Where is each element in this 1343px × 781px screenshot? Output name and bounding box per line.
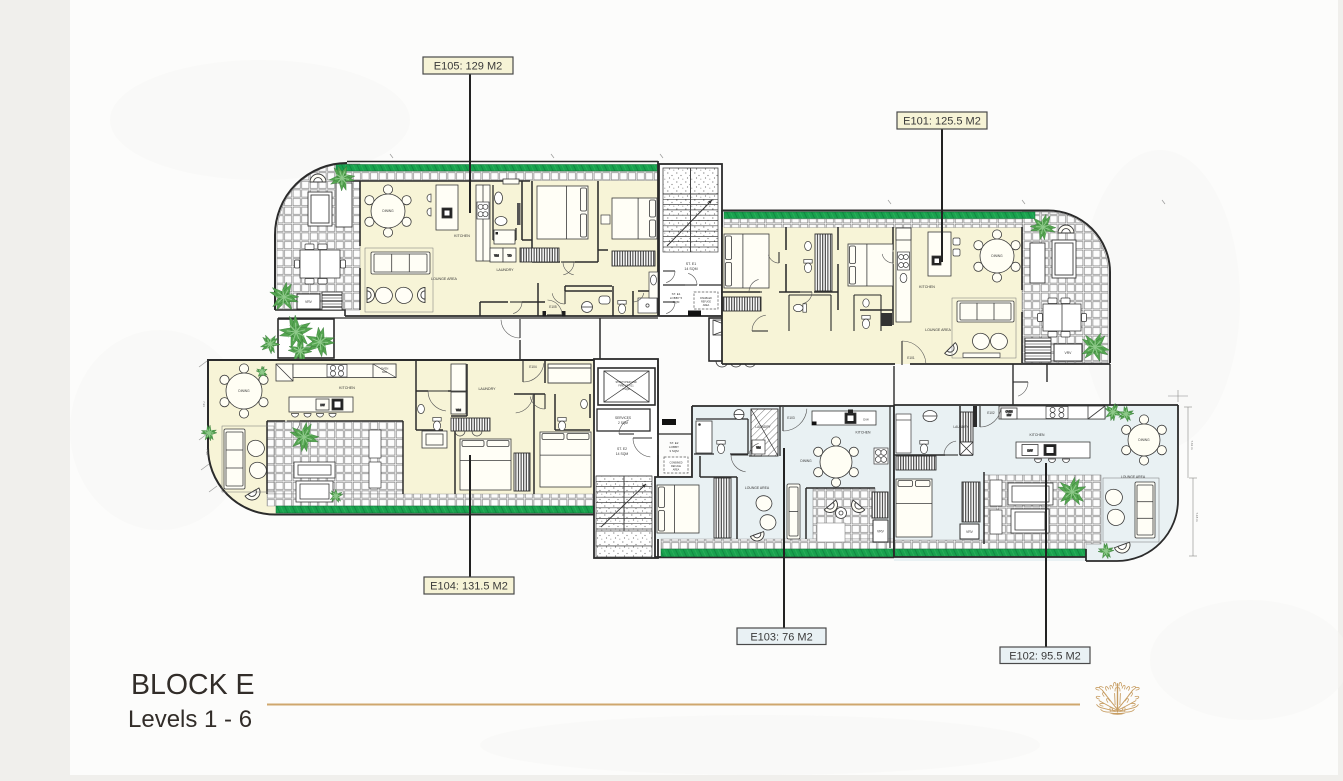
svg-text:KITCHEN: KITCHEN (856, 431, 871, 435)
svg-text:4 SQM: 4 SQM (622, 388, 630, 391)
svg-text:DINING: DINING (382, 209, 394, 213)
svg-text:D/W: D/W (863, 418, 869, 422)
svg-text:WM: WM (456, 408, 462, 412)
svg-text:DINING: DINING (991, 254, 1003, 258)
svg-text:WM: WM (756, 447, 760, 450)
svg-text:7.91: 7.91 (202, 401, 206, 407)
svg-text:KITCHEN: KITCHEN (454, 234, 470, 238)
svg-text:DINING: DINING (800, 459, 812, 463)
svg-text:Levels 1 - 6: Levels 1 - 6 (128, 706, 252, 733)
svg-text:T/D: T/D (507, 254, 511, 258)
svg-text:KITCHEN: KITCHEN (339, 386, 355, 390)
svg-text:E103: 76 M2: E103: 76 M2 (750, 632, 812, 644)
svg-text:14 SQM: 14 SQM (684, 267, 697, 271)
svg-text:ST. E2: ST. E2 (617, 447, 627, 451)
svg-text:LOUNGE AREA: LOUNGE AREA (1121, 475, 1146, 479)
svg-text:E105: 129 M2: E105: 129 M2 (434, 61, 503, 73)
svg-text:DINING: DINING (1138, 438, 1150, 442)
svg-text:ST. E1: ST. E1 (686, 262, 697, 266)
svg-text:LOUNGE AREA: LOUNGE AREA (925, 328, 951, 332)
svg-text:7.38: 7.38 (205, 449, 209, 455)
svg-text:E104: 131.5 M2: E104: 131.5 M2 (430, 581, 508, 593)
svg-text:MW: MW (1007, 414, 1012, 417)
svg-text:LAUNDRY: LAUNDRY (478, 387, 496, 391)
svg-text:VRV: VRV (1065, 351, 1073, 355)
svg-text:E104: E104 (529, 365, 537, 369)
svg-text:2 SQM: 2 SQM (618, 421, 628, 425)
svg-text:E102: 95.5 M2: E102: 95.5 M2 (1009, 651, 1081, 663)
svg-text:LOUNGE AREA: LOUNGE AREA (745, 486, 770, 490)
svg-text:AREA: AREA (703, 304, 710, 307)
svg-text:LAUNDRY: LAUNDRY (953, 425, 969, 429)
svg-text:E101: 125.5 M2: E101: 125.5 M2 (903, 116, 981, 128)
svg-text:OVEN: OVEN (381, 367, 389, 371)
svg-text:E105: E105 (549, 305, 557, 309)
svg-text:WM: WM (494, 254, 499, 258)
svg-text:E101: E101 (907, 356, 915, 360)
svg-text:VRV: VRV (305, 300, 313, 304)
svg-text:E102: E102 (987, 411, 995, 415)
svg-text:AREA: AREA (673, 469, 680, 472)
svg-text:MW: MW (382, 370, 387, 374)
svg-text:D/W: D/W (1027, 449, 1033, 453)
svg-text:LOUNGE AREA: LOUNGE AREA (431, 277, 457, 281)
svg-text:14 SQM: 14 SQM (616, 452, 629, 456)
svg-text:BLOCK E: BLOCK E (131, 669, 255, 701)
svg-text:DW: DW (320, 403, 325, 407)
svg-text:VRV: VRV (966, 530, 974, 534)
svg-text:DINING: DINING (238, 389, 250, 393)
svg-text:KITCHEN: KITCHEN (1030, 433, 1045, 437)
svg-text:3 SQM: 3 SQM (669, 449, 679, 453)
svg-text:7.18 m: 7.18 m (1195, 512, 1199, 522)
svg-text:VRV: VRV (877, 529, 885, 533)
svg-text:SERVICES: SERVICES (615, 416, 631, 420)
svg-text:KITCHEN: KITCHEN (919, 285, 935, 289)
svg-text:E103: E103 (787, 416, 795, 420)
svg-text:LAUNDRY: LAUNDRY (755, 425, 771, 429)
svg-text:7.61 m: 7.61 m (1190, 440, 1194, 450)
svg-text:LAUNDRY: LAUNDRY (496, 268, 514, 272)
